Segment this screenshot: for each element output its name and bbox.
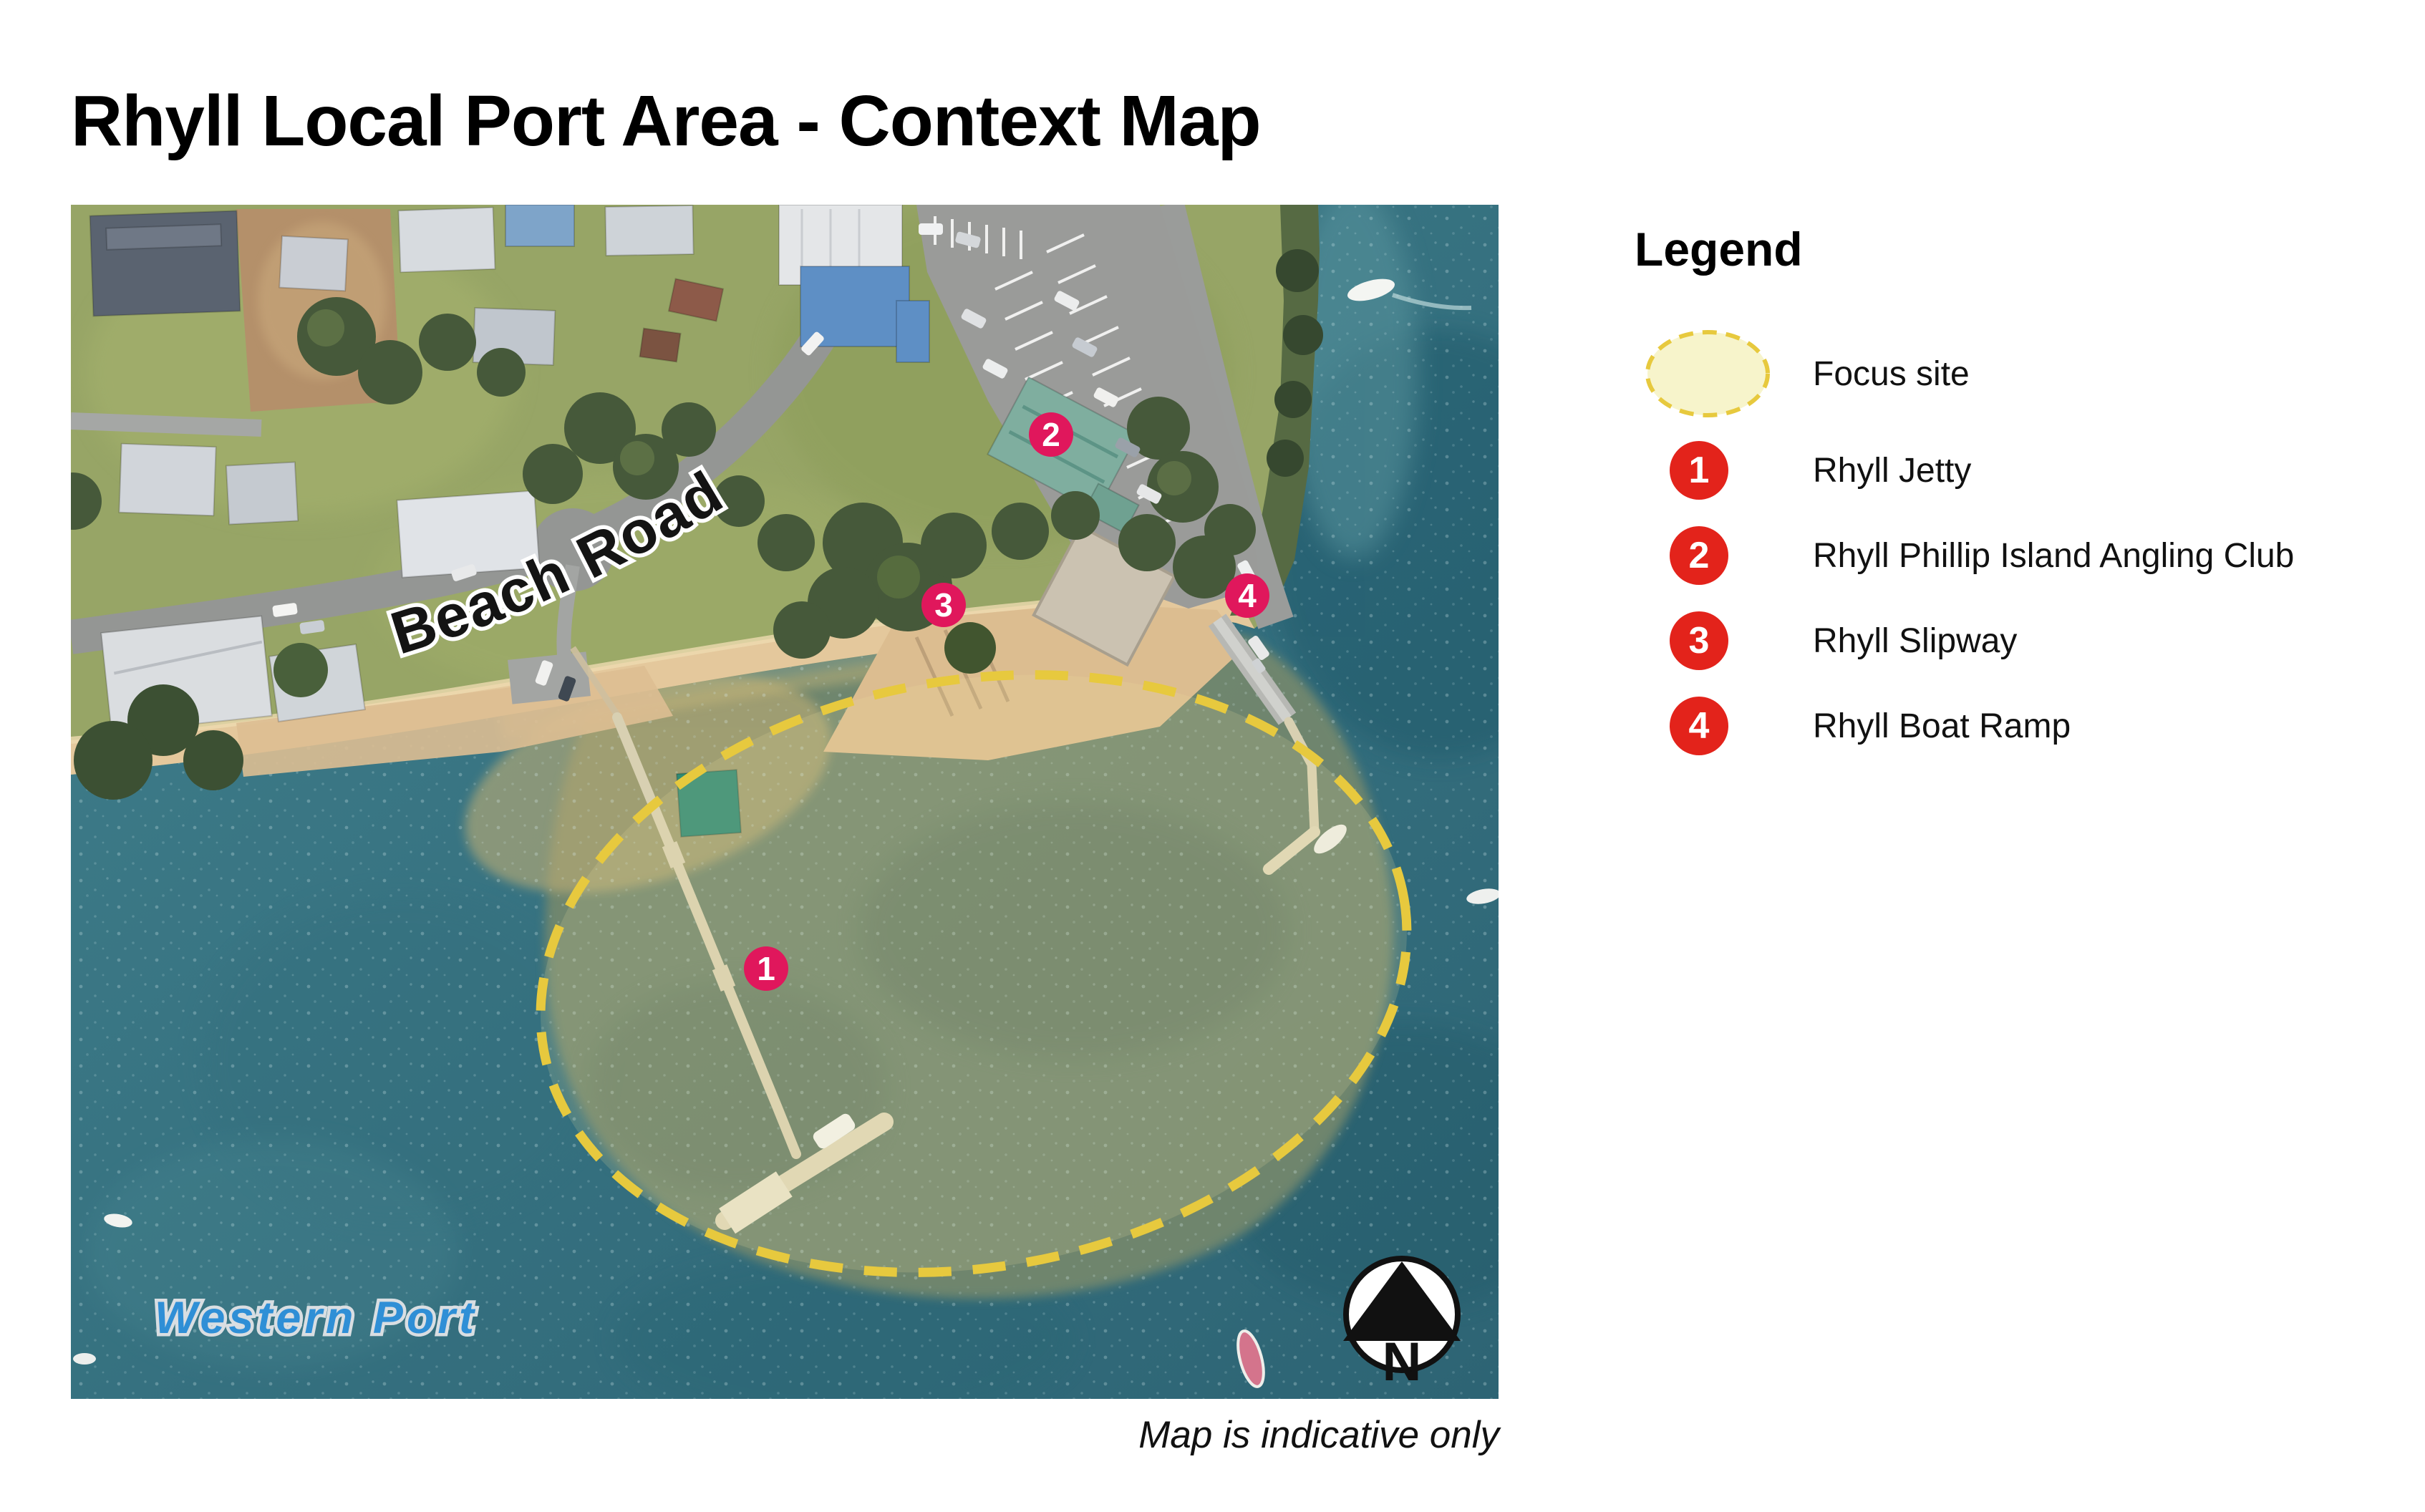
legend-item-label: Rhyll Jetty [1813,451,1971,490]
legend-item-angling-club: 2 Rhyll Phillip Island Angling Club [1670,526,2294,585]
context-map-page: { "title": "Rhyll Local Port Area - Cont… [0,0,2425,1512]
legend-marker-1-number: 1 [1689,449,1710,492]
side-street [71,421,261,428]
legend-item-rhyll-jetty: 1 Rhyll Jetty [1670,441,1971,500]
svg-text:4: 4 [1238,577,1257,614]
legend-marker-4-number: 4 [1689,704,1710,747]
map-marker-rhyll-jetty: 1 [744,946,788,991]
svg-text:2: 2 [1042,416,1060,453]
page-title: Rhyll Local Port Area - Context Map [71,80,1261,163]
map-marker-angling-club: 2 [1029,412,1073,457]
svg-text:1: 1 [757,950,775,987]
legend-item-label: Rhyll Slipway [1813,621,2017,661]
map-caption: Map is indicative only [1138,1413,1499,1457]
legend-marker-2: 2 [1670,526,1728,585]
aerial-map: Beach Road Western Port N 1 2 3 [71,205,1499,1399]
legend-marker-3-number: 3 [1689,619,1710,662]
aerial-map-canvas: Beach Road Western Port N 1 2 3 [71,205,1499,1399]
legend-focus-site-label: Focus site [1813,344,1970,403]
north-letter: N [1383,1332,1422,1392]
legend-marker-1: 1 [1670,441,1728,500]
legend-item-slipway: 3 Rhyll Slipway [1670,611,2017,670]
legend-marker-2-number: 2 [1689,534,1710,577]
legend-heading: Legend [1635,222,1803,276]
legend-marker-4: 4 [1670,697,1728,755]
legend-item-label: Rhyll Phillip Island Angling Club [1813,536,2294,576]
focus-site-swatch [1643,328,1772,420]
legend-item-label: Rhyll Boat Ramp [1813,707,2071,746]
western-port-label: Western Port [155,1293,478,1343]
svg-text:3: 3 [934,586,953,624]
map-marker-slipway: 3 [921,583,966,627]
legend-marker-3: 3 [1670,611,1728,670]
map-marker-boat-ramp: 4 [1225,573,1269,618]
legend-item-boat-ramp: 4 Rhyll Boat Ramp [1670,697,2071,755]
